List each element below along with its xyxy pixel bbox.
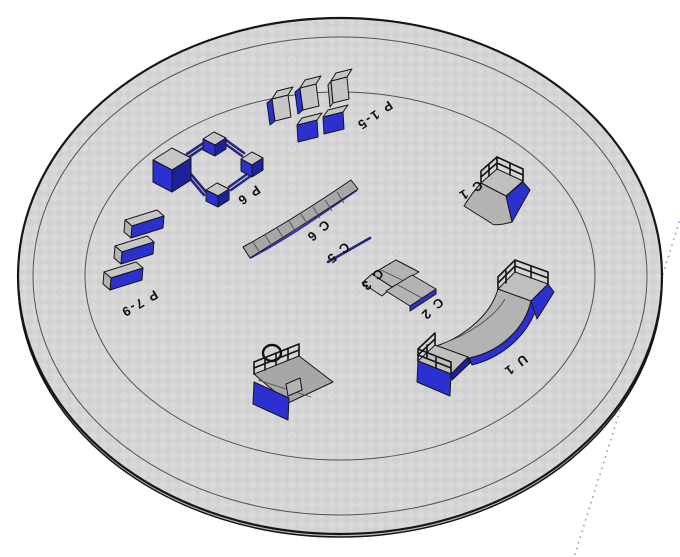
box-front-face — [331, 77, 349, 103]
3d-viewport[interactable]: P 1-5 P 6 P 7-9 — [0, 0, 680, 557]
scene-canvas: P 1-5 P 6 P 7-9 — [0, 0, 680, 557]
box-front-face — [300, 84, 319, 110]
box-front-face — [272, 95, 291, 121]
